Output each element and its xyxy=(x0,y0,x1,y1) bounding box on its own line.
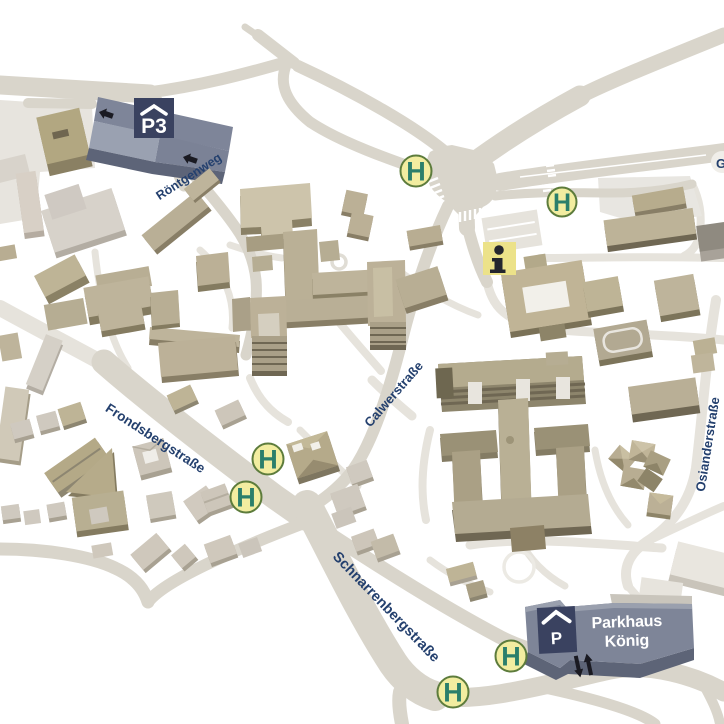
svg-text:P: P xyxy=(550,629,562,649)
svg-text:G: G xyxy=(716,156,724,171)
svg-text:H: H xyxy=(258,445,278,475)
svg-text:P3: P3 xyxy=(141,115,167,138)
svg-text:H: H xyxy=(236,483,256,513)
svg-text:H: H xyxy=(443,678,463,708)
svg-text:Parkhaus: Parkhaus xyxy=(591,613,662,632)
svg-text:H: H xyxy=(553,189,571,217)
svg-text:H: H xyxy=(406,157,426,187)
svg-text:H: H xyxy=(501,642,521,672)
svg-text:König: König xyxy=(604,632,649,651)
